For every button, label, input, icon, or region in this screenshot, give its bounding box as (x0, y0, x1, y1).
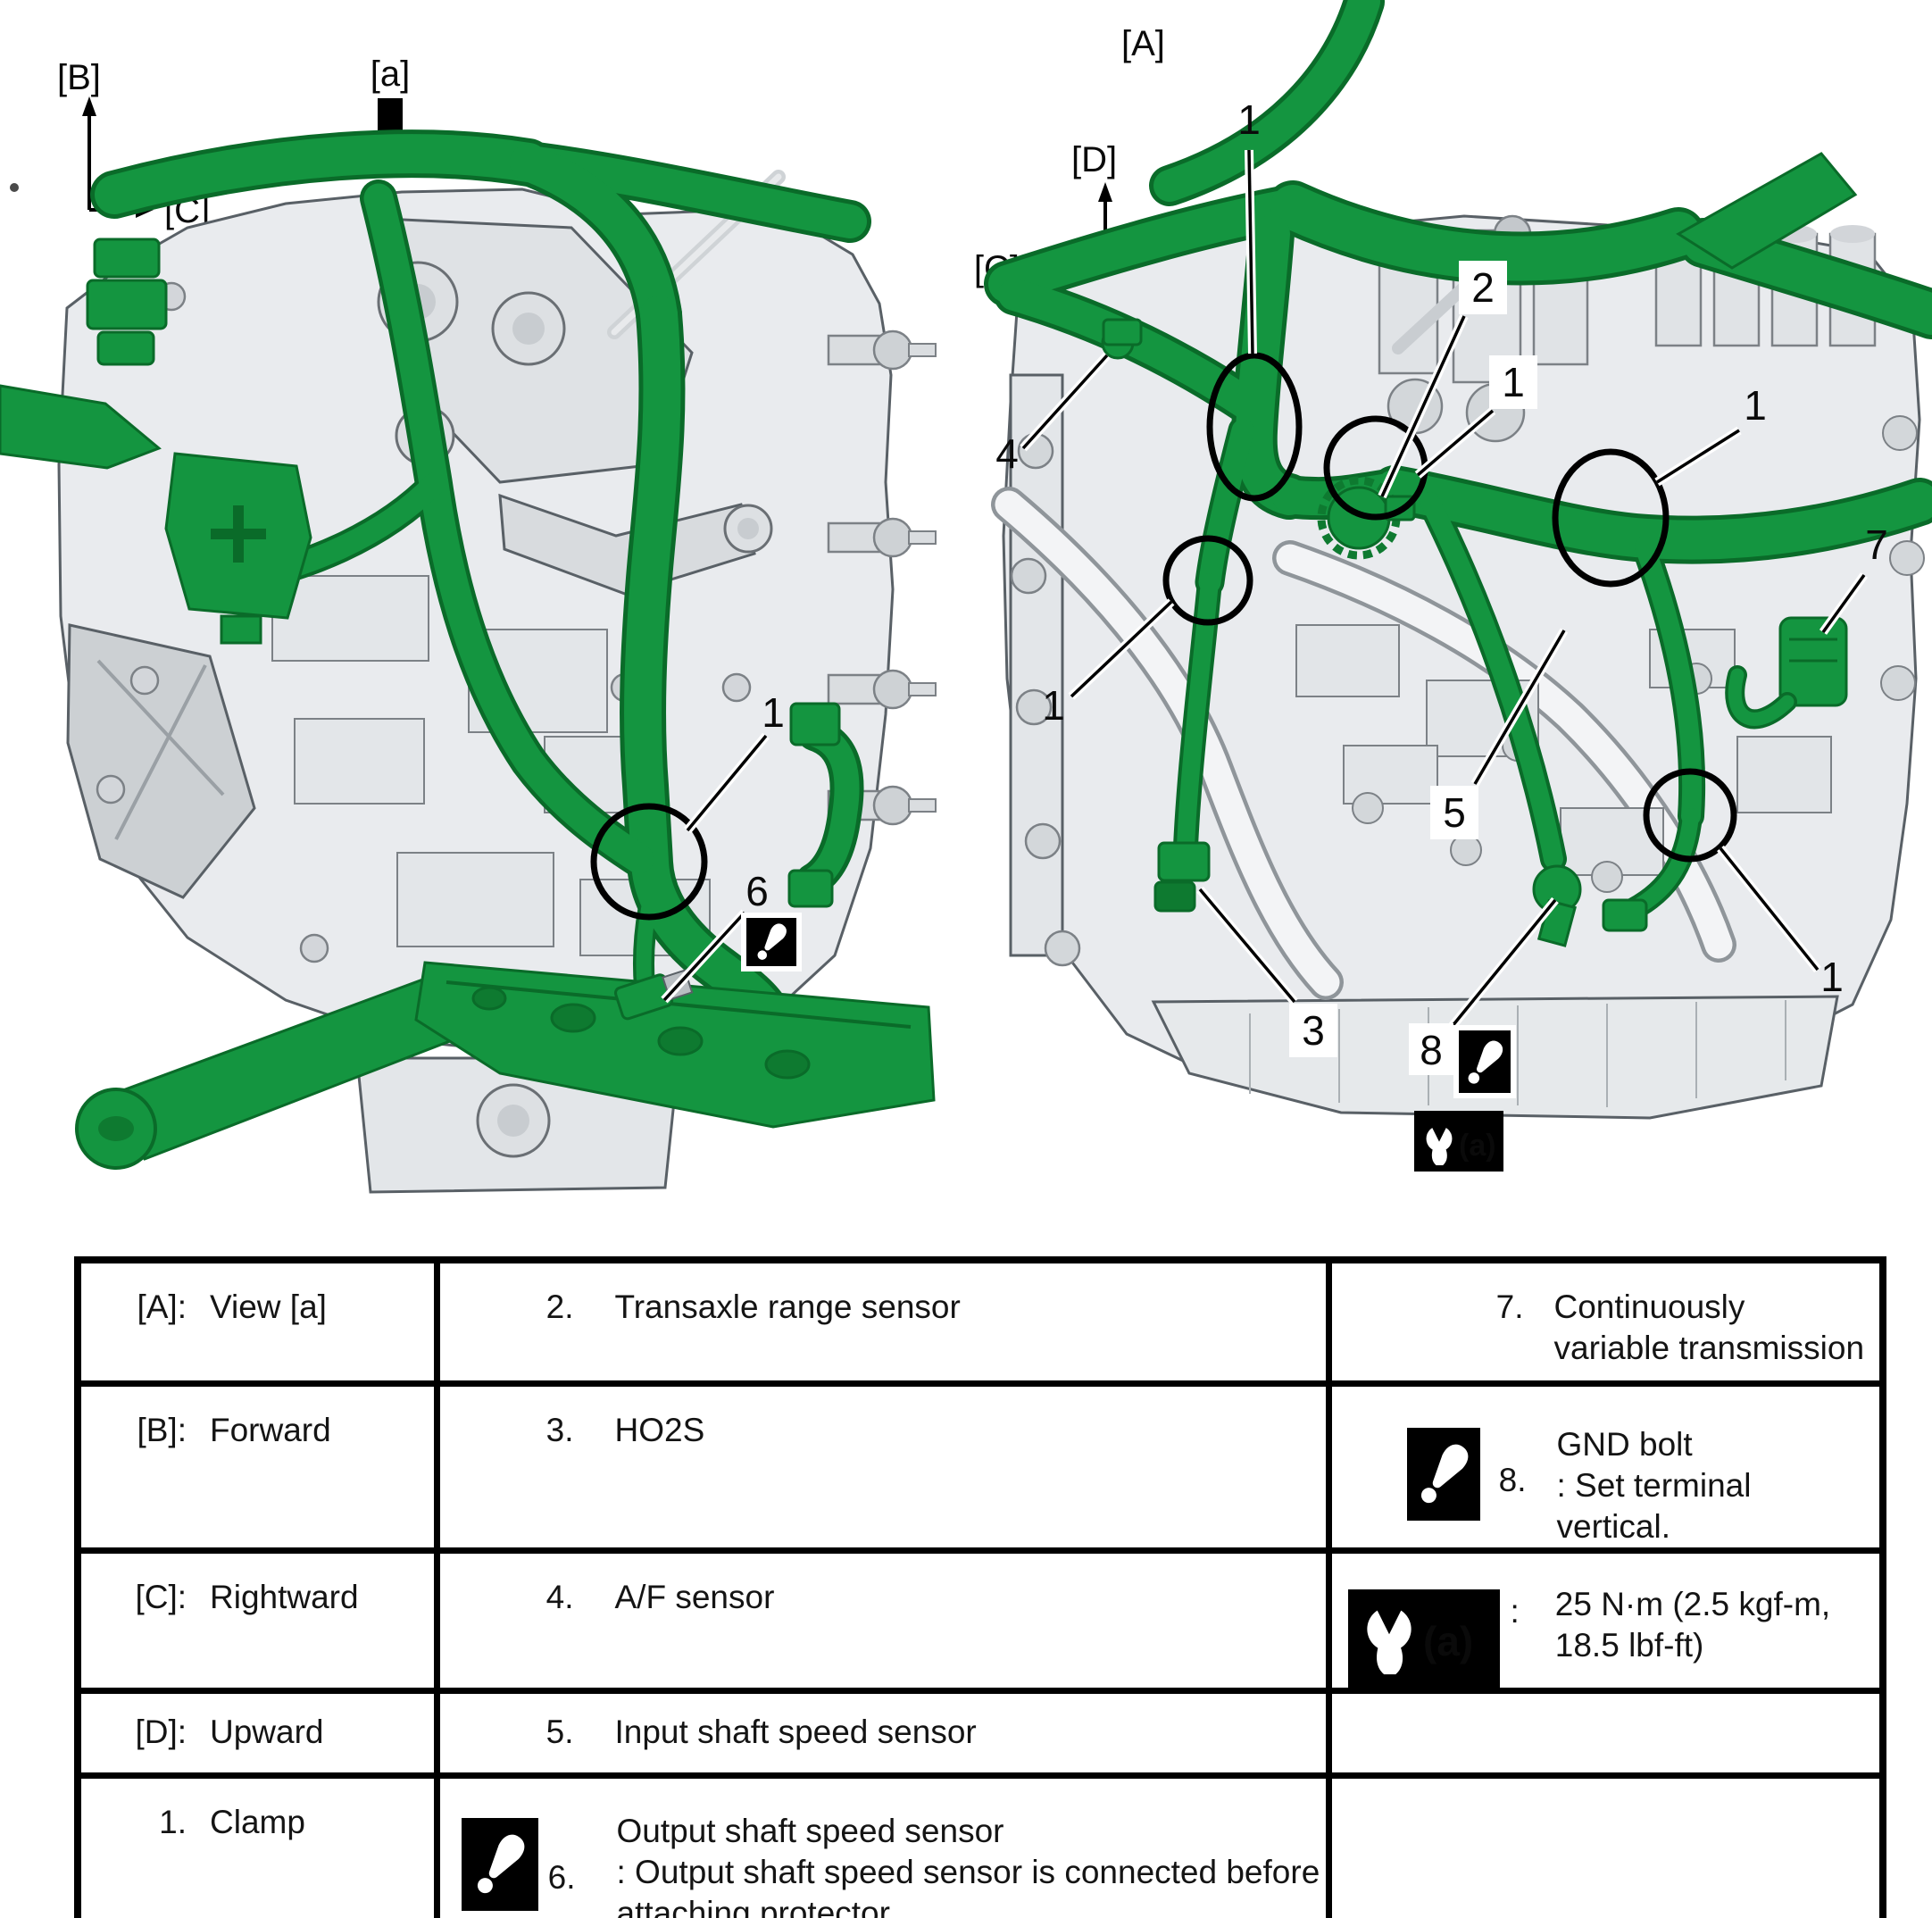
cell-forward: [B]:Forward (78, 1383, 437, 1550)
cell-item-2: 2.Transaxle range sensor (437, 1260, 1328, 1383)
terminal-mark-icon (741, 913, 802, 972)
callout-1-bottom-right: 1 (1820, 954, 1844, 1000)
axis-up-arrowhead (1098, 182, 1112, 202)
key-label: [D]: (81, 1712, 187, 1753)
item-title: Output shaft speed sensor (617, 1813, 1004, 1849)
cell-empty-1 (1328, 1690, 1883, 1775)
axis-label-forward: [B] (57, 58, 101, 97)
callout-1-clamp: 1 (762, 689, 785, 736)
callout-7-cvt: 7 (1865, 521, 1888, 568)
item-text: Output shaft speed sensor: Output shaft … (617, 1811, 1326, 1918)
torque-ref-label: (a) (1423, 1618, 1473, 1664)
axis-up-arrowhead (82, 96, 96, 116)
item-text: Transaxle range sensor (615, 1287, 1326, 1328)
view-a-title: [A] (1121, 24, 1165, 63)
item-text: Continuously variable transmission (1554, 1287, 1869, 1369)
terminal-mark-icon (1453, 1025, 1516, 1098)
speed-sensor-connector (1603, 900, 1646, 930)
item-number: 4. (440, 1577, 574, 1618)
legend-row-3: [C]:Rightward 4.A/F sensor (a) : 25 N·m … (78, 1550, 1883, 1690)
key-label: [B]: (81, 1410, 187, 1451)
terminal-mark-icon (462, 1818, 538, 1911)
cell-torque: (a) : 25 N·m (2.5 kgf-m, 18.5 lbf-ft) (1328, 1550, 1883, 1690)
key-value: View [a] (210, 1287, 327, 1328)
cell-rightward: [C]:Rightward (78, 1550, 437, 1690)
cell-item-8: 8. GND bolt: Set terminal vertical. (1328, 1383, 1883, 1550)
terminal-mark-icon (1407, 1428, 1480, 1521)
item-text: A/F sensor (615, 1577, 1326, 1618)
legend-row-5: 1.Clamp 6. Output shaft speed sensor: Ou… (78, 1775, 1883, 1918)
figure-canvas: [B] [C] [a] (0, 0, 1932, 1250)
callout-1-top: 1 (1237, 96, 1261, 143)
legend-table: [A]:View [a] 2.Transaxle range sensor 7.… (74, 1256, 1886, 1918)
callout-5-input-sensor: 5 (1443, 789, 1466, 836)
view-direction-label: [a] (371, 54, 410, 94)
item-title: GND bolt (1557, 1426, 1693, 1463)
cell-item-6: 6. Output shaft speed sensor: Output sha… (437, 1775, 1328, 1918)
item-text: Input shaft speed sensor (615, 1712, 1326, 1753)
callout-1-mid: 1 (1502, 359, 1525, 405)
harness-connector-stack (87, 239, 166, 364)
item-number: 7. (1332, 1287, 1524, 1328)
key-label: 1. (81, 1802, 187, 1843)
callout-4-af-sensor: 4 (995, 430, 1019, 477)
key-label: [C]: (81, 1577, 187, 1618)
item-note: : Output shaft speed sensor is connected… (617, 1852, 1326, 1918)
callout-1-right: 1 (1744, 382, 1767, 429)
torque-wrench-icon: (a) (1348, 1589, 1500, 1688)
torque-ref-label: (a) (1459, 1129, 1496, 1163)
item-number: 3. (440, 1410, 574, 1451)
key-value: Rightward (210, 1577, 359, 1618)
cell-item-5: 5.Input shaft speed sensor (437, 1690, 1328, 1775)
key-value: Upward (210, 1712, 324, 1753)
cell-item-3: 3.HO2S (437, 1383, 1328, 1550)
right-view: [A] [D] [C] [B] (974, 2, 1932, 1172)
item-number: 8. (1480, 1460, 1527, 1501)
key-value: Clamp (210, 1802, 305, 1843)
item-note: : Set terminal vertical. (1557, 1465, 1825, 1547)
axis-label-upward: [D] (1071, 140, 1117, 179)
callout-2-range-sensor: 2 (1471, 264, 1495, 311)
cell-clamp: 1.Clamp (78, 1775, 437, 1918)
legend-row-2: [B]:Forward 3.HO2S 8. GND bolt: Set term… (78, 1383, 1883, 1550)
cell-upward: [D]:Upward (78, 1690, 437, 1775)
callout-1-left: 1 (1042, 682, 1065, 729)
legend-row-1: [A]:View [a] 2.Transaxle range sensor 7.… (78, 1260, 1883, 1383)
torque-wrench-icon: (a) (1414, 1111, 1503, 1172)
separator-colon: : (1511, 1591, 1520, 1632)
key-label: [A]: (81, 1287, 187, 1328)
legend-row-4: [D]:Upward 5.Input shaft speed sensor (78, 1690, 1883, 1775)
cell-item-4: 4.A/F sensor (437, 1550, 1328, 1690)
item-number: 6. (538, 1857, 576, 1898)
item-text: 25 N·m (2.5 kgf-m, 18.5 lbf-ft) (1555, 1584, 1870, 1666)
callout-6-output-sensor: 6 (745, 868, 769, 914)
item-number: 2. (440, 1287, 574, 1328)
item-text: HO2S (615, 1410, 1326, 1451)
key-value: Forward (210, 1410, 331, 1451)
service-manual-figure: [B] [C] [a] (0, 0, 1932, 1918)
callout-8-gnd-bolt: 8 (1420, 1027, 1443, 1073)
cell-view-a: [A]:View [a] (78, 1260, 437, 1383)
item-text: GND bolt: Set terminal vertical. (1557, 1424, 1825, 1547)
cell-item-7: 7.Continuously variable transmission (1328, 1260, 1883, 1383)
item-number: 5. (440, 1712, 574, 1753)
stray-dot (10, 183, 19, 192)
left-view: [B] [C] [a] (0, 54, 936, 1192)
callout-3-ho2s: 3 (1302, 1007, 1325, 1054)
cell-empty-2 (1328, 1775, 1883, 1918)
